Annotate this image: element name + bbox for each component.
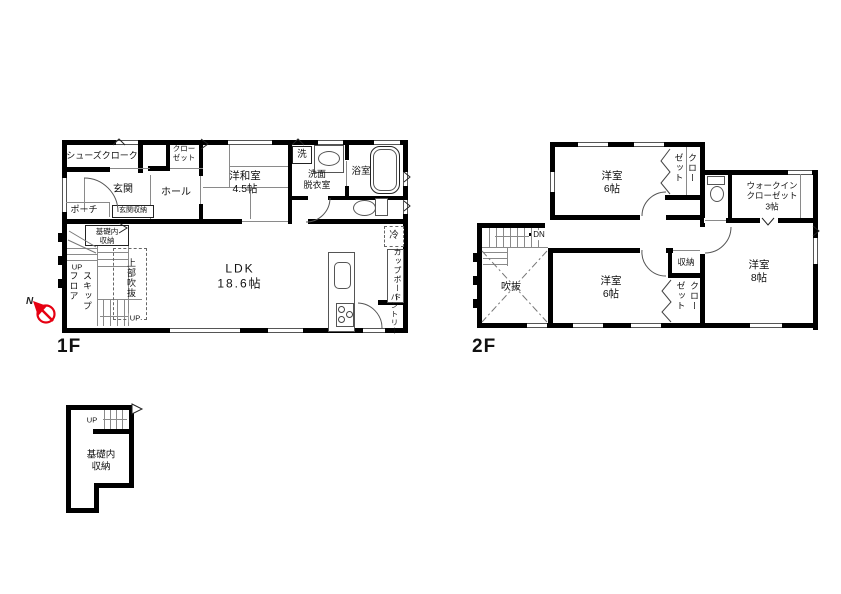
window bbox=[363, 328, 385, 333]
room-label-japanese-room: 洋和室 4.5帖 bbox=[229, 170, 261, 196]
window bbox=[374, 140, 400, 145]
wall-segment bbox=[94, 483, 134, 488]
folding-door-icon bbox=[662, 280, 671, 322]
stair-tread bbox=[503, 228, 504, 247]
room-label-hall: ホール bbox=[161, 187, 191, 199]
stair-tread bbox=[67, 260, 97, 261]
door-swing-bedroom-south bbox=[642, 250, 666, 276]
compass-needle bbox=[39, 307, 53, 321]
compass-icon: N bbox=[26, 296, 55, 323]
up-label: UP bbox=[129, 313, 141, 322]
stair-edge bbox=[482, 247, 548, 248]
sliding-door-line bbox=[242, 221, 288, 222]
folding-door-icon bbox=[661, 149, 670, 194]
wall-stub bbox=[58, 256, 62, 265]
stair-tread bbox=[103, 300, 104, 326]
toilet-tank-icon bbox=[375, 198, 388, 216]
window bbox=[750, 323, 782, 328]
wall-stub bbox=[473, 253, 477, 262]
wall-segment bbox=[66, 405, 134, 410]
toilet-tank-icon bbox=[707, 176, 725, 185]
window bbox=[403, 200, 408, 214]
room-label-porch: ポーチ bbox=[70, 205, 97, 216]
window bbox=[631, 323, 661, 328]
wall-segment bbox=[550, 215, 703, 220]
washer-label: 洗 bbox=[292, 146, 312, 164]
burner-icon bbox=[346, 311, 353, 318]
toilet-door-line bbox=[705, 220, 726, 221]
room-label-void: 吹抜 bbox=[501, 282, 521, 294]
room-label-foundation-storage: 基礎内 収納 bbox=[87, 449, 116, 472]
up-label: UP bbox=[87, 415, 97, 424]
door-swing-bedroom-east bbox=[705, 227, 731, 253]
compass-north-label: N bbox=[26, 296, 34, 307]
storage-label: 収納 bbox=[677, 257, 694, 267]
stair-tread bbox=[67, 254, 97, 255]
entrance-storage-label: 玄関収納 bbox=[112, 205, 154, 218]
burner-icon bbox=[338, 316, 345, 323]
stair-arrow bbox=[495, 236, 529, 237]
wall-segment bbox=[308, 219, 408, 224]
storage-door-line bbox=[673, 250, 700, 251]
door-opening bbox=[640, 248, 666, 253]
stair-arrow bbox=[103, 419, 127, 420]
room-label-bedroom-south: 洋室 6帖 bbox=[601, 275, 622, 301]
room-label-shoe-closet: シューズクローク bbox=[66, 151, 138, 162]
sink-icon bbox=[318, 151, 340, 166]
stair-tread bbox=[510, 228, 511, 247]
toilet-bowl-icon bbox=[710, 186, 724, 202]
floor2-title: 2F bbox=[472, 336, 496, 358]
wall-segment bbox=[292, 196, 308, 200]
stair-tread bbox=[496, 228, 497, 247]
wall-segment bbox=[548, 248, 553, 328]
wall-segment bbox=[668, 273, 704, 278]
entry-opening bbox=[62, 178, 67, 212]
floor1-title: 1F bbox=[57, 336, 81, 358]
wic-shelf-line bbox=[800, 174, 801, 218]
window bbox=[573, 323, 603, 328]
wall-stub bbox=[473, 299, 477, 308]
window bbox=[116, 140, 138, 145]
stair-edge bbox=[507, 248, 508, 266]
window bbox=[268, 328, 303, 333]
wall-segment bbox=[700, 175, 705, 220]
compass-ring bbox=[38, 306, 55, 323]
upper-void-label: 上部吹抜 bbox=[123, 258, 137, 308]
wall-segment bbox=[728, 172, 732, 218]
room-label-closet: クロー ゼット bbox=[173, 144, 196, 162]
window bbox=[634, 142, 664, 147]
wic-opening bbox=[760, 218, 778, 223]
door-line bbox=[200, 176, 201, 204]
room-label-washroom: 洗面 脱衣室 bbox=[303, 169, 330, 191]
toilet-bowl-icon bbox=[353, 200, 376, 216]
room-label-ldk: LDK 18.6帖 bbox=[217, 261, 262, 290]
stair-tread bbox=[110, 300, 111, 326]
wall-segment bbox=[665, 195, 703, 200]
wall-segment bbox=[328, 196, 346, 200]
room-label-walk-in-closet: ウォークイン クローゼット 3帖 bbox=[746, 180, 797, 211]
stair-tread bbox=[517, 228, 518, 247]
door-opening bbox=[640, 215, 666, 220]
door-swing-pantry bbox=[358, 303, 382, 328]
stair-tread bbox=[483, 264, 507, 265]
closet-front-line bbox=[170, 168, 203, 169]
kitchen-sink-icon bbox=[334, 262, 351, 289]
closet-label: クローゼット bbox=[670, 153, 698, 191]
stair-stringer bbox=[97, 246, 98, 326]
room-label-bedroom-north: 洋室 6帖 bbox=[602, 170, 623, 196]
door-swing-bedroom-north bbox=[642, 192, 666, 216]
porch-step-line bbox=[109, 202, 110, 217]
window bbox=[228, 140, 272, 145]
down-label: DN bbox=[532, 230, 546, 240]
stair-tread bbox=[67, 248, 97, 249]
wall-segment bbox=[166, 140, 170, 170]
skip-floor-label: スキップフロア bbox=[67, 271, 93, 317]
door-line bbox=[346, 161, 347, 186]
stair-tread bbox=[483, 258, 507, 259]
wall-segment bbox=[93, 429, 132, 434]
floorplan-canvas: 玄関収納 洗 基礎内 収納 シューズクローク クロー ゼット 玄関 ホール ポー… bbox=[0, 0, 841, 594]
compass-arrowhead bbox=[33, 301, 47, 316]
porch-step-line bbox=[66, 202, 110, 203]
window bbox=[578, 142, 608, 147]
window bbox=[550, 172, 555, 192]
window bbox=[170, 328, 240, 333]
burner-icon bbox=[338, 306, 345, 313]
wall-segment bbox=[550, 142, 703, 147]
window bbox=[813, 238, 818, 264]
room-label-bathroom: 浴室 bbox=[351, 166, 370, 178]
stair-tread bbox=[489, 228, 490, 247]
wall-segment bbox=[62, 167, 110, 172]
stair-tread bbox=[524, 228, 525, 247]
wall-stub bbox=[58, 279, 62, 288]
bathtub-inner bbox=[373, 149, 397, 191]
window bbox=[403, 172, 408, 186]
wall-stub bbox=[473, 276, 477, 285]
refrigerator-label: 冷 bbox=[389, 230, 399, 242]
room-label-bedroom-east: 洋室 8帖 bbox=[749, 259, 770, 285]
wall-segment bbox=[129, 405, 134, 488]
room-label-entrance: 玄関 bbox=[113, 184, 133, 196]
wall-segment bbox=[66, 405, 71, 513]
window bbox=[527, 323, 547, 328]
pantry-label: パントリー bbox=[388, 293, 400, 337]
closet-front-line bbox=[110, 168, 150, 169]
wall-stub bbox=[58, 233, 62, 242]
wall-segment bbox=[477, 223, 545, 228]
stair-tread bbox=[483, 252, 507, 253]
closet-label: クローゼット bbox=[672, 281, 700, 319]
tatami-line bbox=[229, 166, 288, 167]
door-opening bbox=[700, 227, 705, 254]
foundation-storage-label: 基礎内 収納 bbox=[85, 225, 129, 246]
wall-segment bbox=[477, 223, 482, 328]
